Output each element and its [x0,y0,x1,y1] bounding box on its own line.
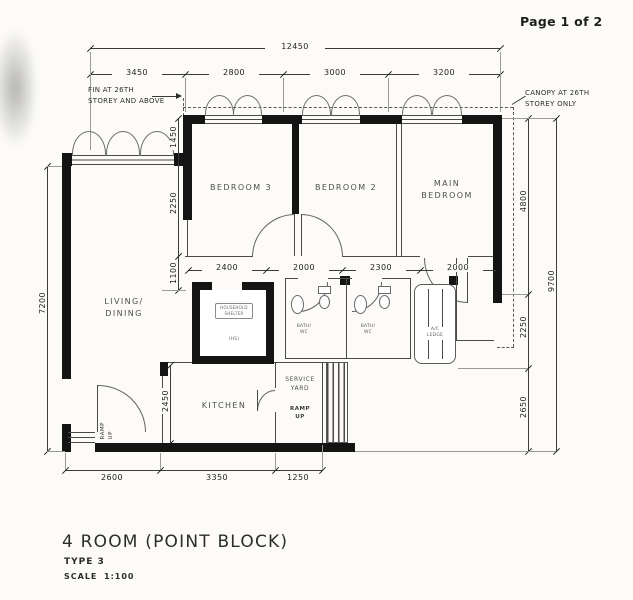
wall-line [328,278,352,279]
wall-segment [62,153,72,166]
wall-line [468,256,493,257]
canopy-note: CANOPY AT 26TH STOREY ONLY [525,88,589,109]
wall-line [275,362,276,388]
window-casement-arc [233,95,262,116]
wall-line [396,124,397,256]
ac-ledge-label: A/C LEDGE [423,327,447,340]
shelter-tag-label: (HS) [222,337,246,343]
page-number: Page 1 of 2 [520,14,602,29]
wall-line [343,256,420,257]
extension-line [65,453,66,470]
wall-line [401,124,402,256]
bath2-label: BATH/ WC [352,324,384,337]
dim-label: 2000 [433,264,483,272]
toilet-tank-fixture [378,286,391,294]
wall-line [274,362,326,363]
wall-segment [360,115,402,124]
wall-line [285,358,411,359]
window [72,155,174,165]
dim-label: 1250 [273,474,323,482]
door-arc [252,214,295,257]
canopy-leader-line [512,96,526,105]
window [205,115,262,124]
plan-scale-label: SCALE [64,572,97,581]
ramp-up-entrance-label: RAMP UP [100,420,116,441]
dim-label: 4800 [520,188,528,214]
room-label-service-yard: SERVICE YARD [280,376,320,393]
window-casement-arc [205,95,234,116]
plan-scale-value: 1:100 [104,572,134,581]
dim-label: 3450 [112,69,162,77]
wall-line [346,278,347,358]
bath1-label: BATH/ WC [288,324,320,337]
toilet-bowl-fixture [319,295,330,309]
wall-line [456,340,494,341]
basin-fixture [291,295,304,314]
fin-leader-line [152,96,176,97]
wall-line [187,220,188,256]
wall-line [285,278,286,358]
ramp-up-service-label: RAMP UP [286,406,314,422]
wall-line [185,256,252,257]
toilet-bowl-fixture [379,295,390,309]
ac-ledge-slat [442,289,443,359]
dim-label: 2400 [202,264,252,272]
dim-label: 1100 [170,260,178,286]
dim-line [528,118,529,451]
dim-label: 3200 [419,69,469,77]
shelter-label: HOUSEHOLD SHELTER [216,305,252,316]
wall-segment [183,115,205,124]
wall-segment [262,115,302,124]
door-leaf [97,385,98,432]
extension-line [502,294,528,295]
ramp-stroke [68,442,95,443]
extension-line [355,451,556,452]
floor-plan-sheet: Page 1 of 2 12450 3450 2800 3000 3200 FI… [0,0,633,600]
ac-ledge-louvre [414,284,456,364]
extension-line [502,118,556,119]
wall-line [382,278,410,279]
window-casement-arc [106,131,140,156]
fin-leader-arrow [176,93,182,99]
window-casement-arc [432,95,462,116]
wall-segment [95,443,355,452]
household-shelter-door [212,282,242,290]
wall-line [285,278,298,279]
dim-label: 1450 [170,124,178,150]
window-casement-arc [331,95,360,116]
room-label-bedroom2: BEDROOM 2 [315,182,377,194]
ramp-stroke [68,432,95,433]
dim-label-kitchen-depth: 2450 [162,388,170,414]
extension-line [322,445,323,470]
dim-label: 2300 [356,264,406,272]
plan-type: TYPE 3 [64,557,105,567]
dim-label: 2650 [520,394,528,420]
dim-label-left-outer: 7200 [39,290,47,316]
wall-segment [292,124,299,214]
scan-smudge [0,28,38,148]
dim-label-right-outer: 9700 [548,268,556,294]
dim-label: 2250 [170,190,178,216]
room-label-main-bedroom: MAIN BEDROOM [416,178,478,203]
canopy-dashed-line [513,107,514,347]
basin-fixture [354,295,367,314]
extension-line [458,368,528,369]
extension-line [162,290,186,291]
extension-line [160,453,161,470]
wall-segment [493,115,502,303]
dim-line [47,166,48,451]
door-arc [257,390,275,411]
service-yard-screen [326,362,348,443]
canopy-dashed-line [497,347,514,348]
dim-label: 2600 [87,474,137,482]
door-leaf [294,214,295,256]
wall-line [275,412,276,443]
wall-segment [62,424,71,452]
toilet-tank-fixture [318,286,331,294]
extension-line [47,166,62,167]
dim-label: 2250 [520,314,528,340]
extension-line [500,52,501,112]
dim-label-total-width: 12450 [265,43,325,51]
window-casement-arc [402,95,432,116]
window-casement-arc [302,95,331,116]
room-label-kitchen: KITCHEN [194,400,254,412]
extension-line [275,453,276,470]
wall-segment [62,166,71,379]
door-leaf [257,390,258,411]
dim-label: 3000 [310,69,360,77]
dim-line [178,118,179,290]
ramp-stroke [68,437,95,438]
dim-label: 2000 [279,264,329,272]
room-label-living-dining: LIVING/ DINING [99,296,149,321]
door-leaf [301,214,302,256]
fin-dashed-line [183,98,184,116]
dim-line [65,470,322,471]
wall-segment [183,124,192,220]
ac-ledge-slat [428,289,429,359]
window [402,115,462,124]
door-arc [301,214,343,257]
dim-label: 3350 [192,474,242,482]
room-label-bedroom3: BEDROOM 3 [210,182,272,194]
household-shelter-interior [200,290,266,356]
wall-line [322,362,323,443]
plan-title: 4 ROOM (POINT BLOCK) [62,532,288,552]
dim-tick [497,45,504,52]
dim-label: 2800 [209,69,259,77]
dim-line [556,118,557,451]
window-casement-arc [72,131,106,156]
extension-line [47,451,65,452]
wall-line [410,278,411,358]
window [302,115,360,124]
dim-line [170,365,171,443]
